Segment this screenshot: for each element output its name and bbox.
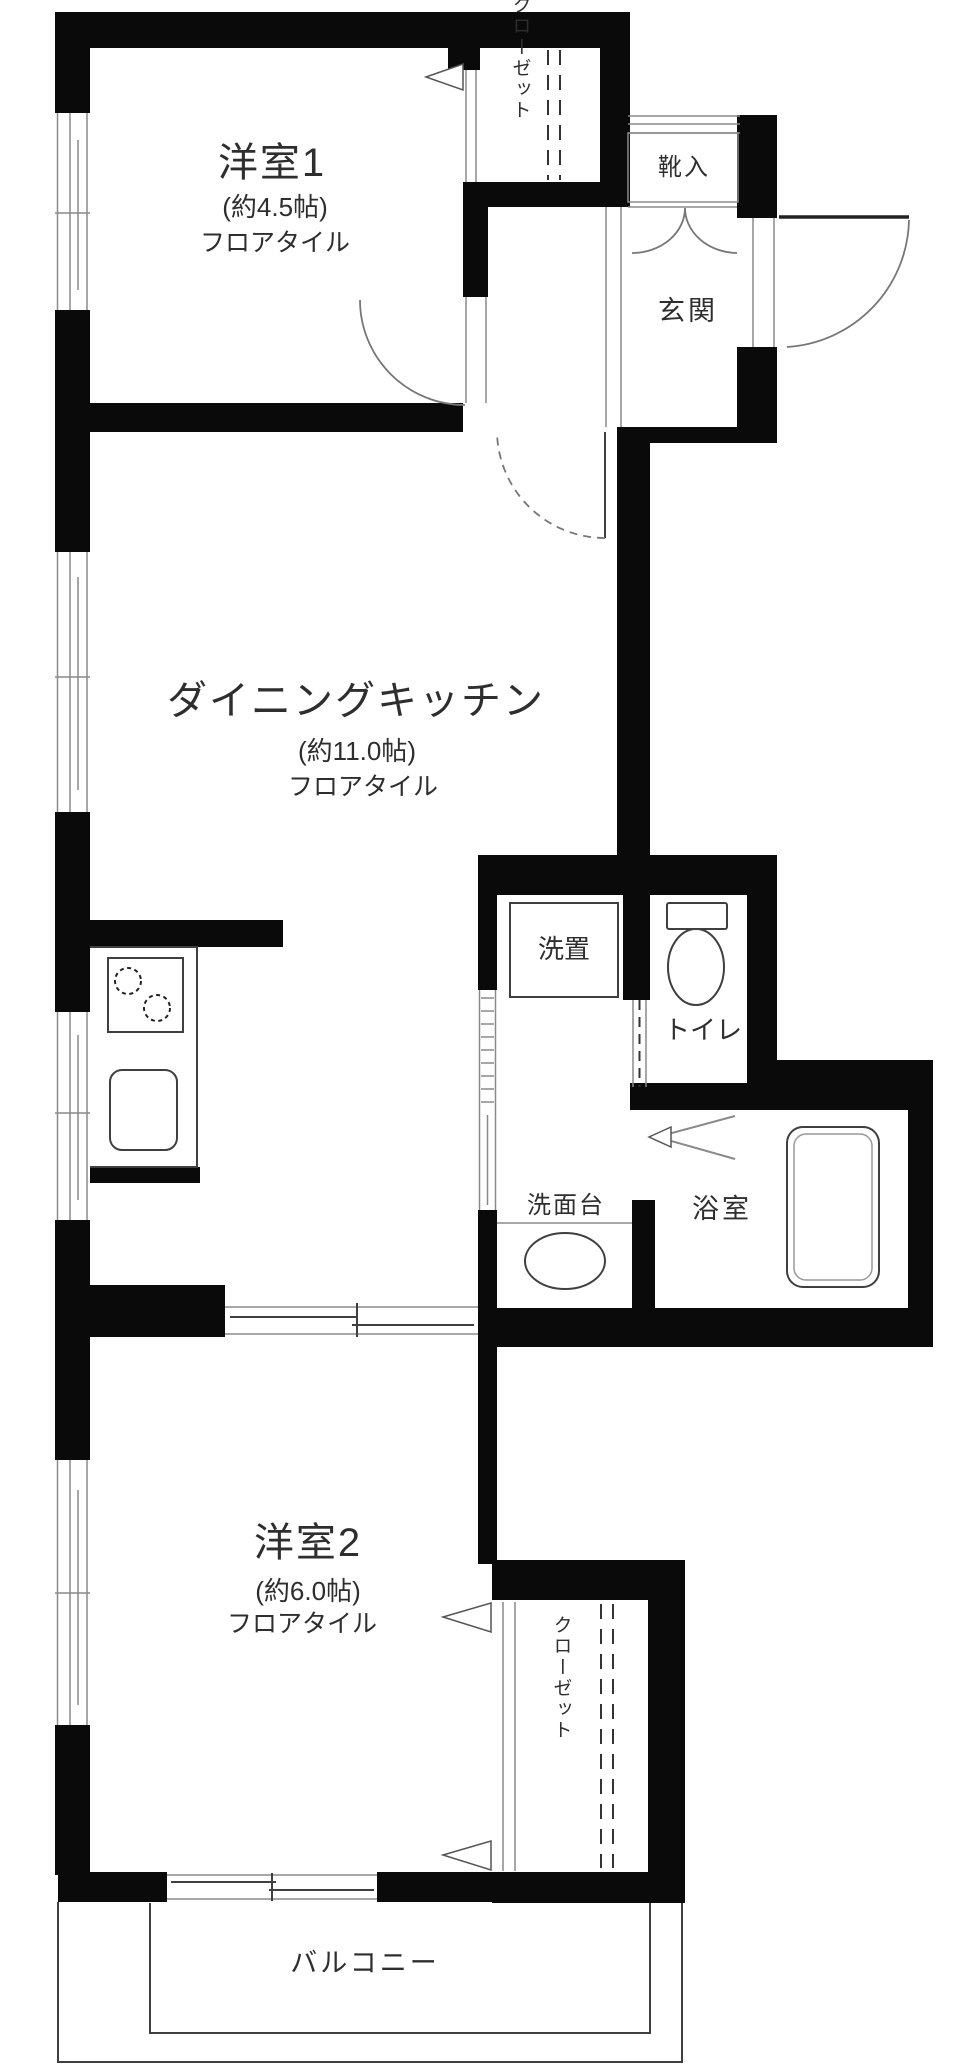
wall-segment — [55, 12, 630, 48]
wall-segment — [448, 12, 480, 70]
stove-icon — [108, 958, 183, 1032]
bathroom-door-arrow-icon — [649, 1127, 671, 1147]
wall-segment — [600, 12, 630, 207]
wall-segment — [632, 1200, 655, 1308]
front-door — [779, 217, 909, 347]
wall-segment — [478, 1308, 933, 1347]
bathtub-icon — [787, 1127, 879, 1287]
label-entrance: 玄関 — [658, 296, 718, 326]
wall-segment — [90, 1167, 200, 1183]
closet-hanger-pole — [548, 50, 560, 180]
walls — [55, 12, 933, 1903]
room1-door — [360, 297, 486, 405]
label-closet-bottom: クローゼット — [551, 1615, 572, 1741]
label-room2-name: 洋室2 — [254, 1521, 362, 1565]
closet-door-arrow-icon — [443, 1603, 491, 1632]
washbasin-icon — [525, 1233, 605, 1289]
wall-segment — [463, 207, 488, 297]
window-dk-upper — [55, 552, 90, 812]
closet-door-arrow-icon — [426, 64, 463, 90]
label-dk-name: ダイニングキッチン — [167, 679, 545, 723]
front-door-swing-arc — [787, 220, 909, 347]
wall-segment — [747, 1060, 933, 1110]
label-room2-floor: フロアタイル — [227, 1610, 377, 1638]
label-laundry: 洗置 — [538, 934, 590, 964]
closet-hanger-pole — [601, 1604, 613, 1868]
label-room1-name: 洋室1 — [218, 141, 326, 185]
toilet-tank-icon — [667, 903, 727, 929]
wall-segment — [55, 1725, 90, 1875]
wall-segment — [55, 403, 463, 432]
closet-bottom — [443, 1602, 613, 1871]
wall-segment — [55, 12, 90, 115]
label-bathroom: 浴室 — [692, 1194, 752, 1224]
dk-room2-sliding-door — [225, 1303, 478, 1337]
bathroom — [649, 1116, 879, 1287]
wall-segment — [90, 920, 283, 947]
wall-segment — [632, 1087, 652, 1110]
bathroom-door-arrow — [649, 1116, 735, 1159]
floorplan-drawing: 洋室1 (約4.5帖) フロアタイル ダイニングキッチン (約11.0帖) フロ… — [0, 0, 960, 2069]
wall-segment — [478, 895, 497, 990]
shoe-cabinet-door-arcs — [632, 208, 737, 253]
shoe-cabinet — [628, 116, 740, 253]
balcony-outline — [58, 1902, 682, 2062]
label-room2-size: (約6.0帖) — [255, 1576, 360, 1606]
window-dk-lower — [55, 1012, 90, 1220]
label-toilet: トイレ — [664, 1015, 742, 1045]
wall-segment — [617, 427, 650, 865]
toilet-sliding-door — [633, 1000, 646, 1087]
window-room1 — [55, 113, 90, 310]
label-room1-size: (約4.5帖) — [222, 192, 327, 222]
wall-segment — [492, 1872, 685, 1903]
wall-segment — [377, 1872, 492, 1902]
room1-door-swing-arc — [360, 300, 465, 405]
label-shoe-cabinet: 靴入 — [658, 154, 710, 181]
wall-segment — [478, 855, 777, 895]
wall-segment — [747, 895, 777, 1060]
label-balcony: バルコニー — [290, 1948, 439, 1978]
kitchen-sink-icon — [110, 1070, 177, 1150]
wall-segment — [648, 1560, 685, 1903]
label-dk-size: (約11.0帖) — [298, 736, 416, 766]
wall-segment — [55, 812, 90, 1012]
wall-segment — [463, 182, 630, 207]
balcony-sliding-door — [167, 1873, 377, 1901]
kitchen — [90, 947, 197, 1167]
label-closet-top: クローゼット — [510, 0, 531, 121]
closet-door-arrow-icon — [443, 1841, 491, 1870]
label-dk-floor: フロアタイル — [288, 773, 438, 801]
window-room2 — [55, 1460, 90, 1725]
wall-segment — [908, 1060, 933, 1347]
wall-segment — [478, 1337, 497, 1564]
label-room1-floor: フロアタイル — [200, 229, 350, 257]
accordion-door — [480, 990, 496, 1210]
label-washstand: 洗面台 — [527, 1192, 605, 1219]
wall-segment — [623, 895, 650, 1000]
wall-segment — [58, 1872, 167, 1902]
closet-top — [426, 50, 560, 182]
wall-segment — [90, 1285, 225, 1337]
floorplan-page: 洋室1 (約4.5帖) フロアタイル ダイニングキッチン (約11.0帖) フロ… — [0, 0, 960, 2069]
dk-door-swing-arc — [497, 432, 605, 538]
wall-segment — [737, 115, 777, 218]
wall-segment — [55, 1220, 90, 1460]
toilet-bowl-icon — [668, 929, 724, 1005]
dk-door — [497, 432, 605, 538]
